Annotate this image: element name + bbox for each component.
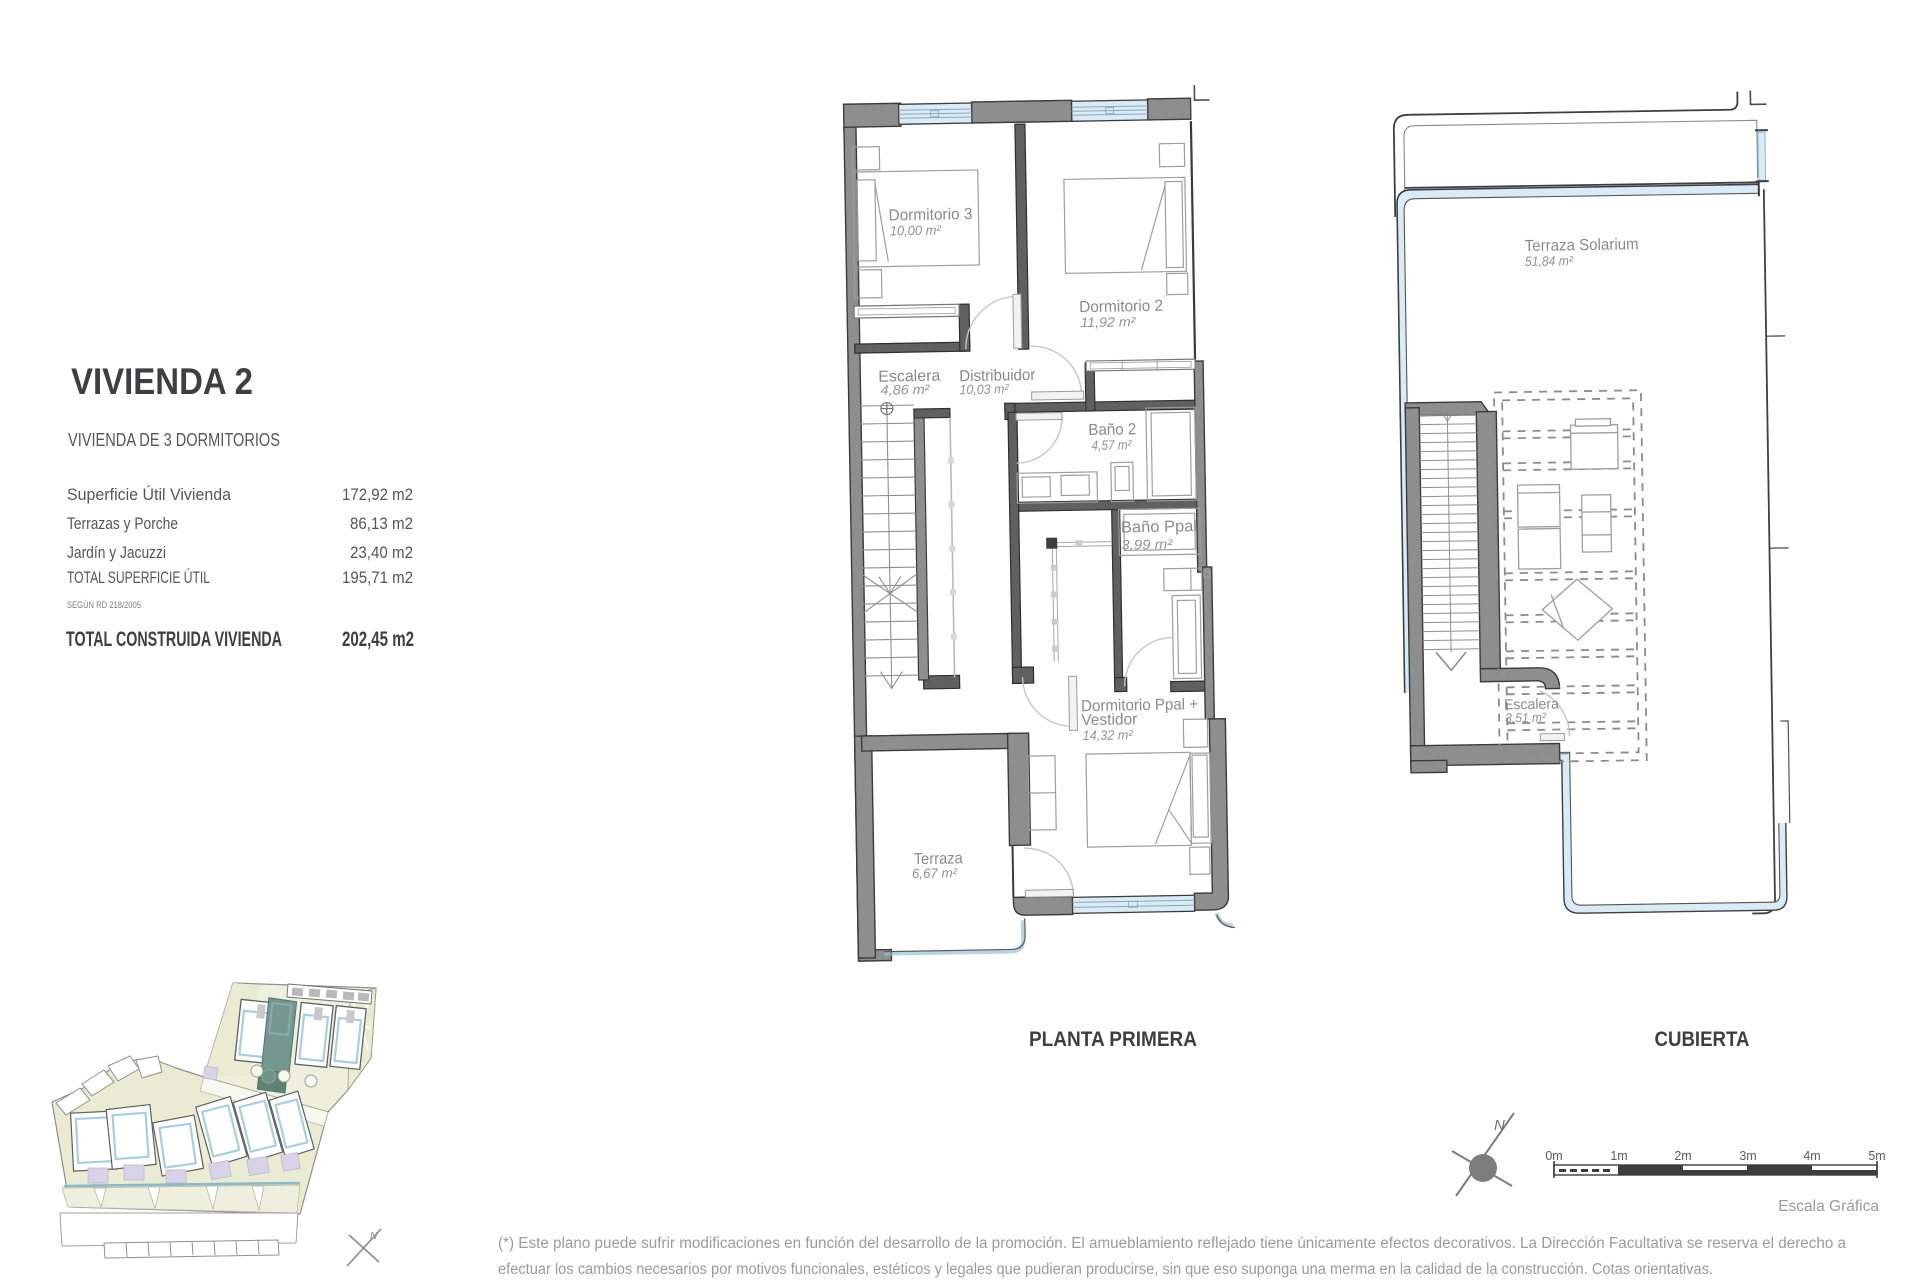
svg-text:efectuar los cambios necesario: efectuar los cambios necesarios por moti… xyxy=(498,1261,1713,1278)
svg-text:3,51 m²: 3,51 m² xyxy=(1505,710,1547,726)
svg-text:Terraza Solarium: Terraza Solarium xyxy=(1525,236,1639,255)
svg-text:2m: 2m xyxy=(1674,1149,1691,1163)
svg-text:10,03 m²: 10,03 m² xyxy=(959,381,1009,397)
svg-text:1m: 1m xyxy=(1610,1149,1627,1163)
svg-text:CUBIERTA: CUBIERTA xyxy=(1655,1028,1750,1051)
svg-text:172,92 m2: 172,92 m2 xyxy=(342,486,413,504)
svg-text:4,57 m²: 4,57 m² xyxy=(1091,437,1132,453)
svg-text:TOTAL SUPERFICIE ÚTIL: TOTAL SUPERFICIE ÚTIL xyxy=(67,568,210,587)
svg-text:TOTAL CONSTRUIDA VIVIENDA: TOTAL CONSTRUIDA VIVIENDA xyxy=(66,627,282,651)
svg-text:N: N xyxy=(1494,1117,1505,1134)
svg-text:3m: 3m xyxy=(1739,1149,1756,1163)
svg-text:Dormitorio 3: Dormitorio 3 xyxy=(888,206,972,224)
svg-text:3,99 m²: 3,99 m² xyxy=(1121,537,1173,553)
svg-text:Dormitorio 2: Dormitorio 2 xyxy=(1079,298,1163,316)
svg-text:SEGÚN RD 218/2005: SEGÚN RD 218/2005 xyxy=(67,600,141,611)
svg-text:195,71 m2: 195,71 m2 xyxy=(342,569,413,587)
svg-text:14,32 m²: 14,32 m² xyxy=(1082,727,1133,743)
svg-text:10,00 m²: 10,00 m² xyxy=(890,223,942,239)
svg-text:23,40 m2: 23,40 m2 xyxy=(350,544,413,562)
svg-text:VIVIENDA DE 3 DORMITORIOS: VIVIENDA DE 3 DORMITORIOS xyxy=(68,430,280,450)
svg-text:Escala Gráfica: Escala Gráfica xyxy=(1778,1198,1879,1215)
svg-text:86,13 m2: 86,13 m2 xyxy=(350,515,413,533)
svg-text:202,45 m2: 202,45 m2 xyxy=(342,627,414,651)
svg-text:N: N xyxy=(370,1231,378,1242)
svg-text:Superficie Útil Vivienda: Superficie Útil Vivienda xyxy=(67,485,232,504)
svg-text:11,92 m²: 11,92 m² xyxy=(1080,314,1136,330)
svg-text:4,86 m²: 4,86 m² xyxy=(880,382,930,398)
svg-text:0m: 0m xyxy=(1545,1149,1562,1163)
svg-text:PLANTA PRIMERA: PLANTA PRIMERA xyxy=(1029,1028,1197,1051)
svg-text:4m: 4m xyxy=(1803,1149,1820,1163)
svg-text:5m: 5m xyxy=(1868,1149,1885,1163)
svg-text:51,84 m²: 51,84 m² xyxy=(1525,253,1574,269)
svg-text:Terrazas y Porche: Terrazas y Porche xyxy=(67,515,178,533)
svg-text:Jardín y Jacuzzi: Jardín y Jacuzzi xyxy=(67,544,166,562)
svg-text:6,67 m²: 6,67 m² xyxy=(912,865,958,881)
svg-text:(*) Este plano puede sufrir mo: (*) Este plano puede sufrir modificacion… xyxy=(498,1235,1846,1252)
svg-text:Baño Ppal: Baño Ppal xyxy=(1121,518,1197,536)
svg-text:VIVIENDA 2: VIVIENDA 2 xyxy=(71,361,253,402)
